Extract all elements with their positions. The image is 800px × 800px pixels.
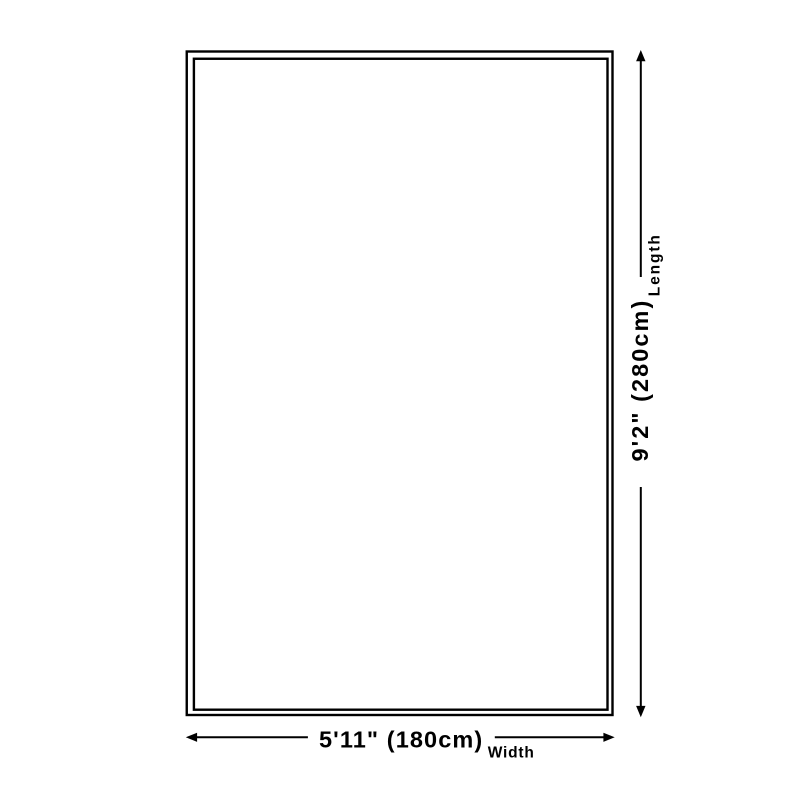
svg-text:5'11" (180cm): 5'11" (180cm) xyxy=(319,727,483,753)
svg-text:Length: Length xyxy=(647,233,664,296)
svg-text:Width: Width xyxy=(488,745,535,762)
svg-text:9'2" (280cm): 9'2" (280cm) xyxy=(627,299,653,462)
